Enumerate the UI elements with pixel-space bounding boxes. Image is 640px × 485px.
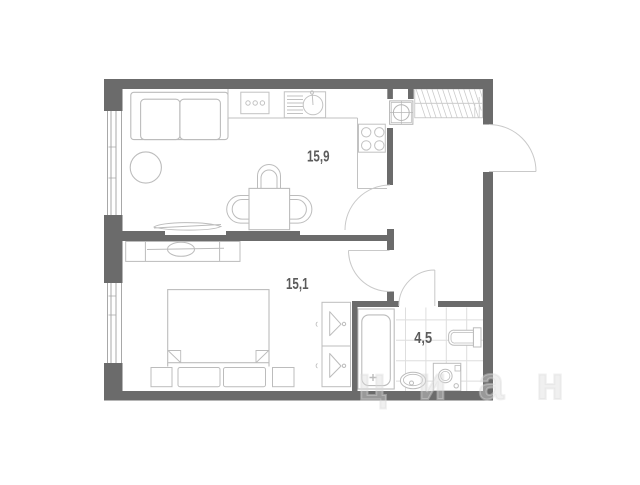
svg-text:15,9: 15,9 [307, 148, 330, 165]
svg-text:циан: циан [358, 357, 596, 409]
svg-text:4,5: 4,5 [414, 330, 432, 347]
svg-text:15,1: 15,1 [286, 276, 309, 293]
